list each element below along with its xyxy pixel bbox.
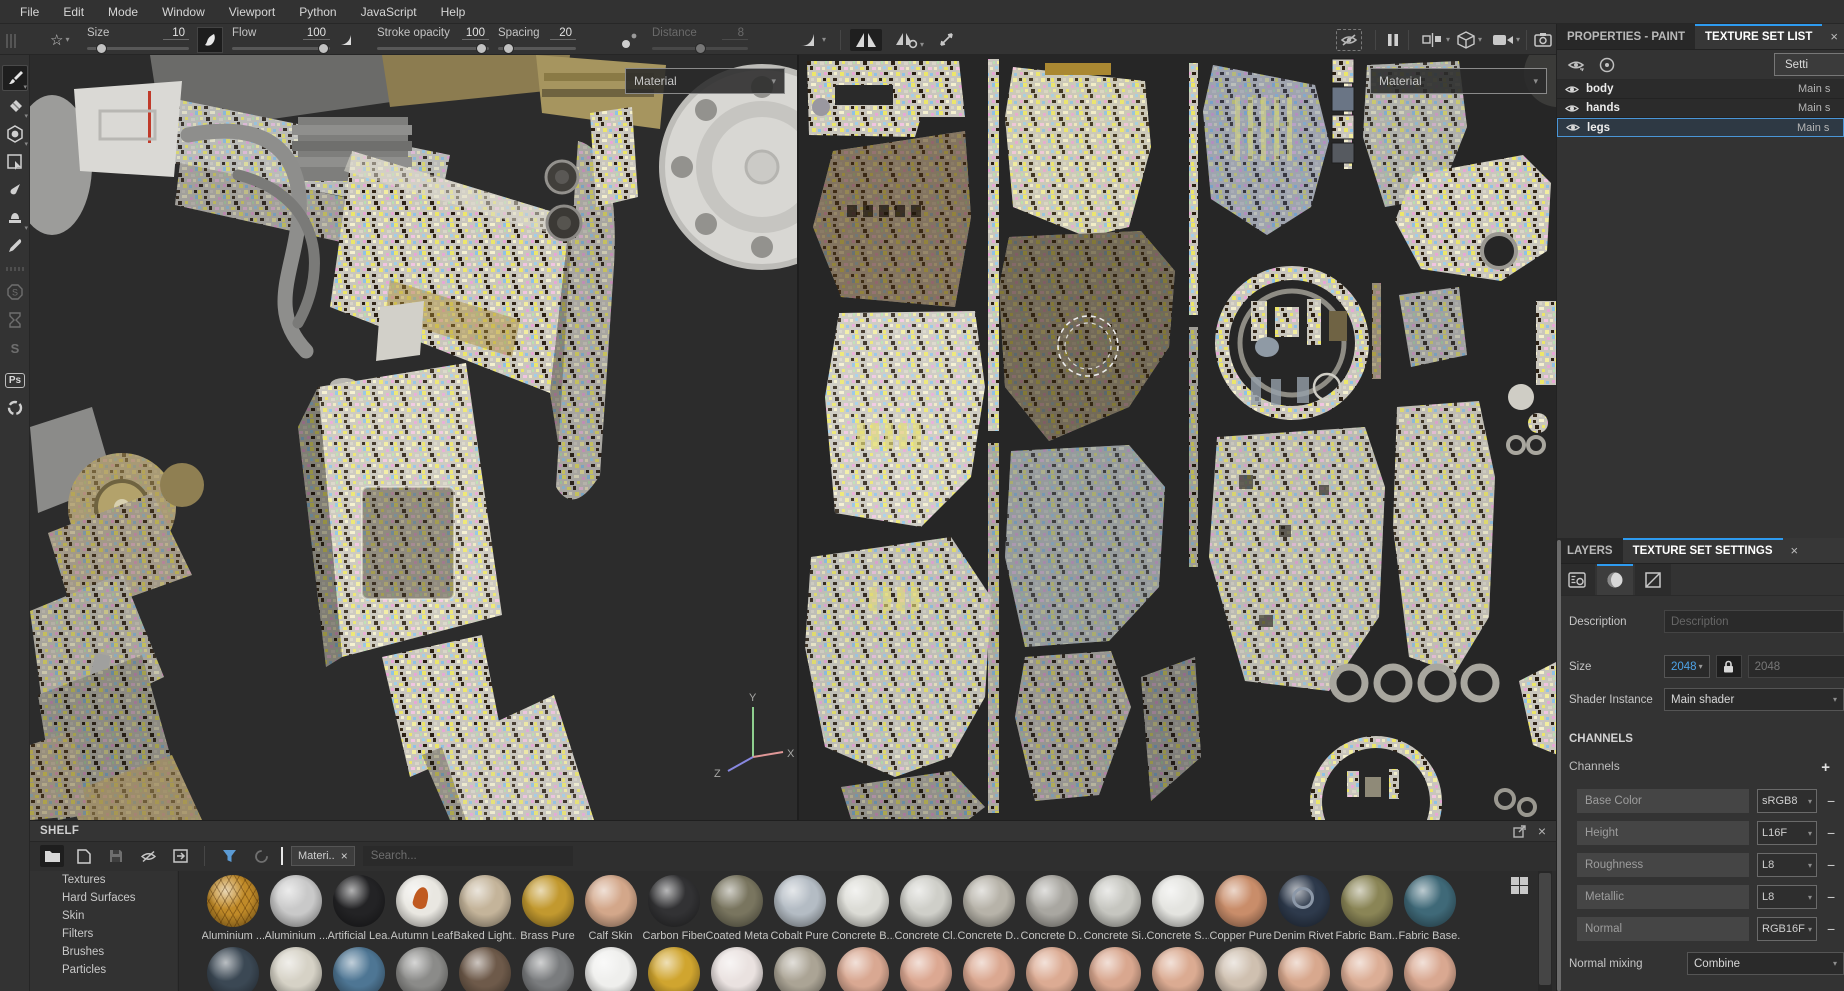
pending-resource-icon[interactable] <box>2 307 28 333</box>
shader-instance-label: Shader Instance <box>1569 694 1664 706</box>
chevron-down-icon: ▾ <box>1808 829 1812 838</box>
lazy-mouse-icon <box>938 31 958 49</box>
hex-decoration <box>207 875 259 927</box>
material-item: Concrete Cl... <box>894 875 957 942</box>
smudge-icon <box>6 181 24 199</box>
flow-control[interactable]: Flow100 <box>232 25 330 50</box>
photoshop-icon: Ps <box>5 373 25 388</box>
subtab-general-settings[interactable] <box>1559 564 1595 595</box>
pause-icon <box>1386 33 1400 47</box>
material-sphere[interactable] <box>1215 947 1267 991</box>
save-icon <box>109 849 123 863</box>
stroke-opacity-value[interactable]: 100 <box>462 27 489 40</box>
material-sphere[interactable] <box>585 947 637 991</box>
material-name: Concrete D... <box>1021 930 1083 942</box>
channel-row-base-color: Base ColorsRGB8▾− <box>1577 788 1844 814</box>
material-sphere[interactable] <box>1089 947 1141 991</box>
material-item <box>705 947 768 991</box>
material-name: Coated Metal <box>706 930 768 942</box>
material-sphere[interactable] <box>648 947 700 991</box>
material-name: Concrete D... <box>958 930 1020 942</box>
menu-item-viewport[interactable]: Viewport <box>217 0 287 24</box>
projection-tool-button[interactable]: ▾ <box>2 121 28 147</box>
menu-bar: FileEditModeWindowViewportPythonJavaScri… <box>0 0 1844 24</box>
material-item <box>327 947 390 991</box>
material-item: Concrete B... <box>831 875 894 942</box>
remove-channel-button[interactable]: − <box>1827 825 1835 841</box>
folder-icon <box>44 849 61 863</box>
material-sphere[interactable] <box>207 947 259 991</box>
size-control[interactable]: Size10 <box>87 25 189 50</box>
size-label: Size <box>87 27 109 39</box>
shelf-save-button[interactable] <box>104 845 128 867</box>
clone-tool-button[interactable]: ▾ <box>2 205 28 231</box>
filter-chip-label: Materi.. <box>298 850 335 862</box>
flow-value[interactable]: 100 <box>303 27 330 40</box>
viewport-3d[interactable]: Y X Z Material▾ <box>30 55 797 820</box>
texture-set-row-hands[interactable]: handsMain s <box>1557 99 1844 118</box>
normal-mixing-dropdown[interactable]: Combine▾ <box>1687 952 1844 975</box>
polygon-fill-icon <box>6 153 24 171</box>
flow-slider[interactable] <box>232 47 330 50</box>
material-sphere[interactable] <box>207 875 259 927</box>
shelf-header: SHELF × <box>30 821 1556 842</box>
material-item <box>264 947 327 991</box>
viewport-2d-material-dropdown[interactable]: Material▾ <box>1370 68 1547 94</box>
menu-item-edit[interactable]: Edit <box>51 0 96 24</box>
channel-name-field[interactable]: Height <box>1577 821 1749 845</box>
filter-chip[interactable]: Materi.. × <box>291 846 355 866</box>
close-icon[interactable]: × <box>1538 823 1546 839</box>
shelf-category-brushes[interactable]: Brushes <box>30 943 177 961</box>
tools-divider <box>6 267 24 271</box>
description-input[interactable] <box>1664 610 1844 633</box>
material-item <box>1272 947 1335 991</box>
menu-item-file[interactable]: File <box>8 0 51 24</box>
texture-set-settings-tabs: LAYERS TEXTURE SET SETTINGS × <box>1557 538 1844 564</box>
material-name: Calf Skin <box>588 930 632 942</box>
add-channel-button[interactable]: + <box>1821 759 1830 776</box>
material-name: Artificial Lea... <box>328 930 390 942</box>
materials-scrollbar[interactable] <box>1538 871 1552 991</box>
shelf-search-input[interactable] <box>363 846 573 866</box>
shelf-folder-button[interactable] <box>40 845 64 867</box>
material-item: Carbon Fiber <box>642 875 705 942</box>
distance-slider <box>652 47 748 50</box>
material-item: Concrete S... <box>1146 875 1209 942</box>
projection-icon <box>6 125 24 143</box>
menu-item-help[interactable]: Help <box>429 0 478 24</box>
shader-instance-dropdown[interactable]: Main shader▾ <box>1664 688 1844 711</box>
material-sphere[interactable] <box>711 875 763 927</box>
texture-set-name: legs <box>1587 122 1610 134</box>
viewport-2d-canvas[interactable] <box>799 55 1556 820</box>
falloff-preview[interactable] <box>338 24 354 55</box>
material-sphere[interactable] <box>774 875 826 927</box>
material-sphere[interactable] <box>963 875 1015 927</box>
material-item <box>1146 947 1209 991</box>
material-item: Fabric Bam... <box>1335 875 1398 942</box>
close-icon[interactable]: × <box>1783 538 1807 563</box>
shelf-import-button[interactable] <box>168 845 192 867</box>
close-icon[interactable]: × <box>341 849 348 863</box>
filter-text-caret <box>281 847 283 865</box>
size-height-input <box>1748 655 1844 678</box>
solo-view-icon[interactable] <box>1599 57 1615 73</box>
material-name: Concrete Cl... <box>895 930 957 942</box>
menu-item-mode[interactable]: Mode <box>96 0 150 24</box>
eye-slash-icon <box>1340 33 1358 47</box>
material-sphere[interactable] <box>459 947 511 991</box>
camera-mode-button[interactable]: ▾ <box>1492 24 1520 55</box>
material-sphere[interactable] <box>1278 875 1330 927</box>
material-item: Fabric Base... <box>1398 875 1461 942</box>
material-dropdown-label: Material <box>634 74 677 88</box>
material-item <box>390 947 453 991</box>
material-sphere[interactable] <box>711 947 763 991</box>
substance-share-icon[interactable]: S <box>2 335 28 361</box>
stroke-opacity-control[interactable]: Stroke opacity100 <box>377 25 489 50</box>
material-name: Copper Pure <box>1210 930 1272 942</box>
shelf-categories: TexturesHard SurfacesSkinFiltersBrushesP… <box>30 871 177 991</box>
material-sphere[interactable] <box>396 947 448 991</box>
size-dropdown[interactable]: 2048▾ <box>1664 655 1710 678</box>
normal-mixing-value: Combine <box>1694 958 1740 970</box>
spacing-dots-icon <box>620 24 640 55</box>
clone-stamp-icon <box>6 209 24 227</box>
texture-set-row-legs[interactable]: legsMain s <box>1557 118 1844 137</box>
close-icon[interactable]: × <box>1822 24 1844 49</box>
channel-name-field[interactable]: Roughness <box>1577 853 1749 877</box>
brush-tip-icon <box>202 32 218 48</box>
material-item: Concrete D... <box>1020 875 1083 942</box>
photoshop-export-button[interactable]: Ps <box>2 367 28 393</box>
refresh-icon <box>254 849 269 864</box>
material-name: Concrete S... <box>1147 930 1209 942</box>
material-item <box>1083 947 1146 991</box>
remove-channel-button[interactable]: − <box>1827 921 1835 937</box>
material-sphere[interactable] <box>270 875 322 927</box>
material-item: Brass Pure <box>516 875 579 942</box>
material-sphere[interactable] <box>1341 947 1393 991</box>
channels-label-row: Channels + <box>1557 745 1844 782</box>
material-sphere[interactable] <box>396 875 448 927</box>
stroke-opacity-label: Stroke opacity <box>377 27 450 39</box>
texture-set-shader: Main s <box>1798 102 1844 114</box>
shelf-new-resource-button[interactable] <box>72 845 96 867</box>
tab-texture-set-settings[interactable]: TEXTURE SET SETTINGS <box>1623 538 1783 563</box>
tab-texture-set-list[interactable]: TEXTURE SET LIST <box>1695 24 1822 49</box>
symmetry-button[interactable] <box>850 29 882 51</box>
filter-funnel-icon <box>222 849 237 863</box>
crossed-square-icon <box>1644 571 1662 589</box>
menu-item-window[interactable]: Window <box>150 0 217 24</box>
material-name: Concrete B... <box>832 930 894 942</box>
material-sphere[interactable] <box>900 947 952 991</box>
material-name: Brass Pure <box>520 930 574 942</box>
shelf-category-particles[interactable]: Particles <box>30 961 177 979</box>
pause-engine-button[interactable] <box>1386 24 1400 55</box>
popout-icon[interactable] <box>1513 825 1526 838</box>
remove-channel-button[interactable]: − <box>1827 889 1835 905</box>
normal-mixing-label: Normal mixing <box>1569 958 1687 970</box>
material-sphere[interactable] <box>1341 875 1393 927</box>
menu-item-javascript[interactable]: JavaScript <box>349 0 429 24</box>
texture-set-name: body <box>1586 83 1613 95</box>
material-name: Fabric Base... <box>1399 930 1461 942</box>
material-name: Aluminium ... <box>265 930 327 942</box>
material-name: Autumn Leaf <box>391 930 453 942</box>
material-sphere[interactable] <box>1026 875 1078 927</box>
material-item: Autumn Leaf <box>390 875 453 942</box>
material-sphere-icon <box>1606 571 1624 589</box>
svg-text:S: S <box>12 288 18 298</box>
material-item <box>579 947 642 991</box>
symmetry-gear-icon <box>894 31 918 49</box>
materials-row-2 <box>201 947 1461 991</box>
channel-row-metallic: MetallicL8▾− <box>1577 884 1844 910</box>
tab-layers[interactable]: LAYERS <box>1557 538 1623 563</box>
chevron-down-icon: ▾ <box>1833 695 1837 704</box>
material-sphere[interactable] <box>1278 947 1330 991</box>
size-value[interactable]: 10 <box>163 27 189 40</box>
brush-toolbar: ☆▾ Size10 Flow100 Stroke opacity100 Spac… <box>0 24 1556 55</box>
material-sphere[interactable] <box>333 875 385 927</box>
resources-updates-button[interactable] <box>2 395 28 421</box>
settings-button[interactable]: Setti <box>1774 53 1844 76</box>
camera-icon <box>1534 32 1552 47</box>
material-name: Aluminium ... <box>202 930 264 942</box>
size-lock-button[interactable] <box>1716 655 1742 678</box>
materials-grid: Aluminium ...Aluminium ...Artificial Lea… <box>178 871 1556 991</box>
visibility-cycle-icon[interactable] <box>1567 58 1585 72</box>
chevron-down-icon: ▾ <box>65 35 69 44</box>
material-sphere[interactable] <box>1215 875 1267 927</box>
brush-falloff-icon <box>338 32 354 48</box>
texture-set-rows: bodyMain shandsMain slegsMain s <box>1557 80 1844 137</box>
material-item <box>894 947 957 991</box>
smudge-tool-button[interactable] <box>2 177 28 203</box>
chevron-down-icon: ▾ <box>1533 76 1538 87</box>
normal-mixing-row: Normal mixing Combine▾ <box>1557 952 1844 975</box>
channel-format-dropdown[interactable]: RGB16F▾ <box>1757 917 1817 941</box>
size-dropdown-value: 2048 <box>1671 661 1697 673</box>
split-view-button[interactable]: ▾ <box>1422 24 1450 55</box>
material-sphere[interactable] <box>333 947 385 991</box>
material-item <box>957 947 1020 991</box>
texture-set-name: hands <box>1586 102 1620 114</box>
material-name: Carbon Fiber <box>643 930 705 942</box>
eyedropper-icon <box>6 237 24 255</box>
material-name: Concrete Si... <box>1084 930 1146 942</box>
split-view-icon <box>1422 32 1444 48</box>
material-sphere[interactable] <box>459 875 511 927</box>
spacing-control[interactable]: Spacing20 <box>498 25 576 50</box>
material-sphere[interactable] <box>522 947 574 991</box>
shelf-category-hard-surfaces[interactable]: Hard Surfaces <box>30 889 177 907</box>
spacing-label: Spacing <box>498 27 540 39</box>
material-sphere[interactable] <box>1404 875 1456 927</box>
material-item <box>768 947 831 991</box>
remove-channel-button[interactable]: − <box>1827 793 1835 809</box>
symmetry-icon <box>854 31 878 49</box>
falloff-curve-icon <box>798 30 820 50</box>
settings-subtabs <box>1557 564 1844 596</box>
eraser-tool-button[interactable]: ▾ <box>2 93 28 119</box>
shelf-category-textures[interactable]: Textures <box>30 871 177 889</box>
material-name: Fabric Bam... <box>1336 930 1398 942</box>
material-name: Baked Light... <box>454 930 516 942</box>
shelf-hide-button[interactable] <box>136 845 160 867</box>
material-item <box>201 947 264 991</box>
channel-format-dropdown[interactable]: L8▾ <box>1757 885 1817 909</box>
channels-label: Channels <box>1569 759 1620 776</box>
texture-set-row-body[interactable]: bodyMain s <box>1557 80 1844 99</box>
chevron-down-icon: ▾ <box>1808 861 1812 870</box>
paint-tool-button[interactable]: ▾ <box>2 65 28 91</box>
eye-icon <box>1566 122 1580 133</box>
shelf-category-filters[interactable]: Filters <box>30 925 177 943</box>
material-sphere[interactable] <box>837 947 889 991</box>
material-sphere[interactable] <box>522 875 574 927</box>
shelf-toolbar: Materi.. × <box>30 842 1556 870</box>
subtab-material[interactable] <box>1597 564 1633 595</box>
material-item <box>1020 947 1083 991</box>
material-sphere[interactable] <box>963 947 1015 991</box>
stroke-opacity-slider[interactable] <box>377 47 489 50</box>
texture-set-shader: Main s <box>1798 83 1844 95</box>
right-panel: PROPERTIES - PAINT TEXTURE SET LIST × Se… <box>1556 24 1844 991</box>
shelf-category-skin[interactable]: Skin <box>30 907 177 925</box>
eye-icon <box>1565 84 1579 95</box>
paint-brush-icon <box>6 69 24 87</box>
material-item: Artificial Lea... <box>327 875 390 942</box>
channel-name-field[interactable]: Normal <box>1577 917 1749 941</box>
spacing-slider[interactable] <box>498 47 576 50</box>
tab-properties-paint[interactable]: PROPERTIES - PAINT <box>1557 24 1695 49</box>
spacing-value[interactable]: 20 <box>550 27 576 40</box>
axis-z-label: Z <box>714 768 721 780</box>
size-row: Size 2048▾ <box>1557 655 1844 678</box>
viewport-2d[interactable]: Material▾ <box>797 55 1556 820</box>
material-item <box>831 947 894 991</box>
channel-name-field[interactable]: Metallic <box>1577 885 1749 909</box>
axis-y-label: Y <box>749 692 757 704</box>
texture-set-list-tabs: PROPERTIES - PAINT TEXTURE SET LIST × <box>1557 24 1844 50</box>
star-stencil-icon: ☆ <box>50 31 63 49</box>
new-file-icon <box>77 849 91 864</box>
distance-value: 8 <box>722 27 748 40</box>
panel-scrollbar[interactable] <box>1557 540 1561 991</box>
screenshot-button[interactable] <box>1534 24 1552 55</box>
viewport-visibility-toggle[interactable] <box>1336 29 1362 51</box>
description-row: Description <box>1557 610 1844 633</box>
channels-section-header: CHANNELS <box>1557 711 1844 745</box>
eye-icon <box>1565 103 1579 114</box>
material-name: Cobalt Pure <box>770 930 828 942</box>
falloff-curve-button[interactable]: ▾ <box>798 24 826 55</box>
lazy-mouse-button[interactable] <box>934 29 962 51</box>
stroke-shape-button[interactable]: ☆▾ <box>50 24 69 55</box>
viewport-3d-canvas[interactable]: Y X Z <box>30 55 797 820</box>
shelf-panel: SHELF × <box>30 820 1556 991</box>
chevron-down-icon: ▾ <box>1699 662 1703 671</box>
polygon-fill-tool-button[interactable] <box>2 149 28 175</box>
settings-list-icon <box>1568 572 1586 588</box>
material-item: Aluminium ... <box>201 875 264 942</box>
material-mode-button[interactable]: ▾ <box>1456 24 1482 55</box>
material-sphere[interactable] <box>900 875 952 927</box>
material-sphere[interactable] <box>1152 875 1204 927</box>
shelf-refresh-button[interactable] <box>249 845 273 867</box>
chevron-down-icon: ▾ <box>771 76 776 87</box>
material-sphere[interactable] <box>1089 875 1141 927</box>
material-sphere[interactable] <box>270 947 322 991</box>
flow-label: Flow <box>232 27 256 39</box>
material-item <box>1335 947 1398 991</box>
shelf-title: SHELF <box>40 825 79 837</box>
distance-label: Distance <box>652 27 697 39</box>
material-sphere[interactable] <box>1404 947 1456 991</box>
material-sphere[interactable] <box>1152 947 1204 991</box>
material-item <box>1209 947 1272 991</box>
remove-channel-button[interactable]: − <box>1827 857 1835 873</box>
shader-instance-row: Shader Instance Main shader▾ <box>1557 688 1844 711</box>
shelf-body: TexturesHard SurfacesSkinFiltersBrushesP… <box>30 871 1556 991</box>
shelf-filter-button[interactable] <box>217 845 241 867</box>
material-item <box>453 947 516 991</box>
subtab-uv[interactable] <box>1635 564 1671 595</box>
material-sphere[interactable] <box>648 875 700 927</box>
toolbar-drag-handle[interactable] <box>6 34 18 48</box>
material-item: Concrete Si... <box>1083 875 1146 942</box>
import-export-icon <box>173 849 188 863</box>
size-slider[interactable] <box>87 47 189 50</box>
channel-row-normal: NormalRGB16F▾− <box>1577 916 1844 942</box>
material-sphere[interactable] <box>837 875 889 927</box>
leaf-decoration <box>411 886 430 911</box>
video-camera-icon <box>1492 33 1514 47</box>
texture-set-shader: Main s <box>1797 122 1844 134</box>
viewport-3d-material-dropdown[interactable]: Material▾ <box>625 68 785 94</box>
brush-preview[interactable] <box>197 27 223 53</box>
channel-format-dropdown[interactable]: L16F▾ <box>1757 821 1817 845</box>
grid-view-icon[interactable] <box>1511 877 1528 894</box>
material-item: Cobalt Pure <box>768 875 831 942</box>
chevron-down-icon: ▾ <box>1833 959 1837 968</box>
substance-painter-app: FileEditModeWindowViewportPythonJavaScri… <box>0 0 1844 991</box>
lock-icon <box>1723 660 1734 673</box>
channel-format-dropdown[interactable]: sRGB8▾ <box>1757 789 1817 813</box>
sync-ring-icon <box>6 399 24 417</box>
material-sphere[interactable] <box>774 947 826 991</box>
tools-sidebar: ▾ ▾ ▾ ▾ S S <box>0 55 30 991</box>
chevron-down-icon: ▾ <box>1808 797 1812 806</box>
material-picker-tool-button[interactable] <box>2 233 28 259</box>
material-item: Baked Light... <box>453 875 516 942</box>
distance-control: Distance8 <box>652 25 748 50</box>
material-sphere[interactable] <box>585 875 637 927</box>
material-sphere[interactable] <box>1026 947 1078 991</box>
substance-resource-icon[interactable]: S <box>2 279 28 305</box>
menu-item-python[interactable]: Python <box>287 0 348 24</box>
material-dropdown-label: Material <box>1379 74 1422 88</box>
symmetry-settings-button[interactable]: ▾ <box>890 29 928 51</box>
channel-row-height: HeightL16F▾− <box>1577 820 1844 846</box>
shader-instance-value: Main shader <box>1671 694 1734 706</box>
channel-name-field[interactable]: Base Color <box>1577 789 1749 813</box>
channel-format-dropdown[interactable]: L8▾ <box>1757 853 1817 877</box>
